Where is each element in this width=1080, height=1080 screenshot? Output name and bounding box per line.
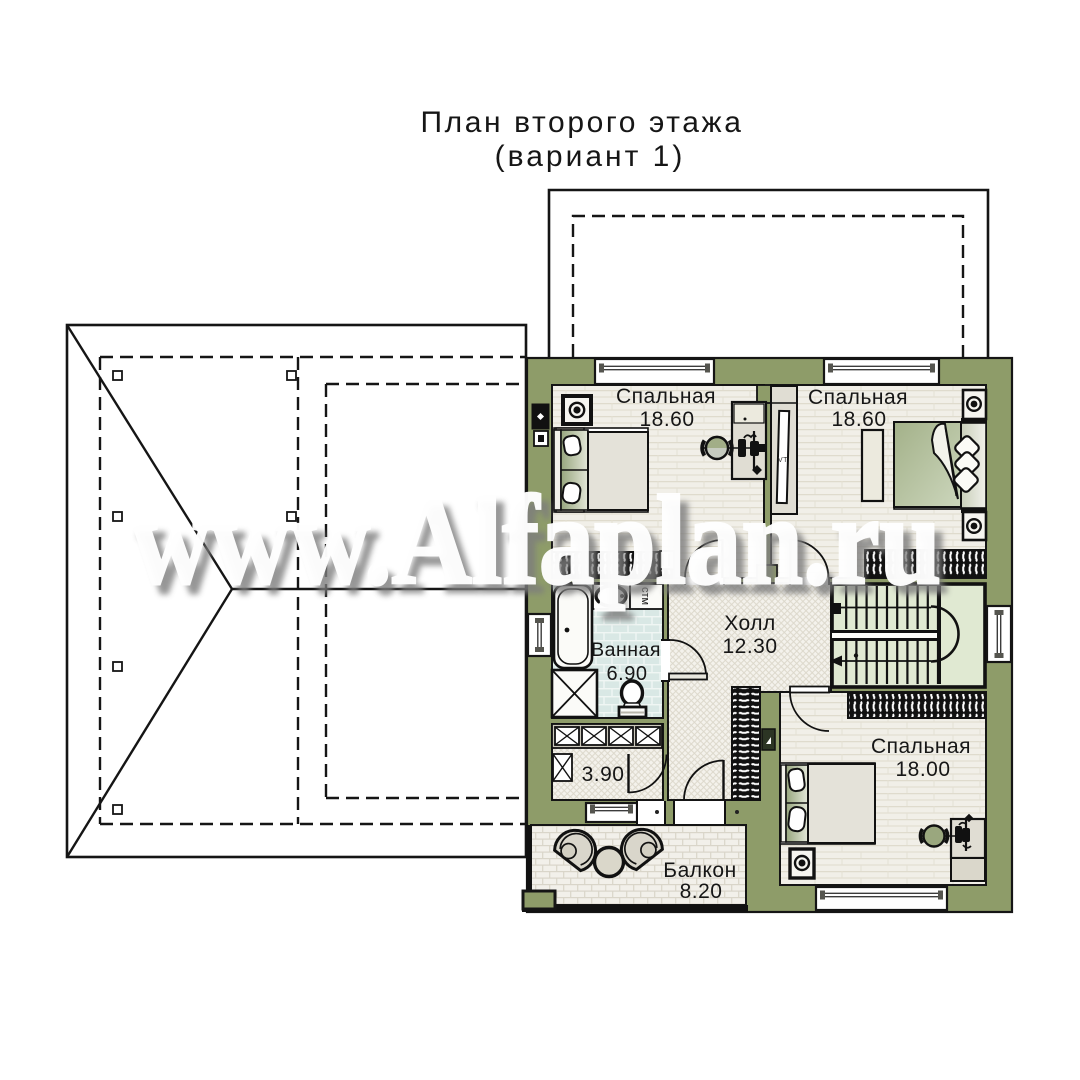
svg-text:Ванная: Ванная bbox=[591, 639, 661, 661]
svg-text:(вариант 1): (вариант 1) bbox=[495, 140, 686, 173]
svg-text:План второго этажа: План второго этажа bbox=[421, 106, 744, 139]
svg-text:Спальная: Спальная bbox=[871, 735, 971, 758]
svg-text:18.60: 18.60 bbox=[831, 408, 886, 431]
svg-text:18.00: 18.00 bbox=[895, 758, 950, 781]
svg-text:Балкон: Балкон bbox=[663, 859, 736, 882]
svg-text:Спальная: Спальная bbox=[808, 386, 908, 409]
svg-text:18.60: 18.60 bbox=[639, 408, 694, 431]
svg-text:3.90: 3.90 bbox=[582, 763, 625, 786]
svg-text:www.Alfaplan.ru: www.Alfaplan.ru bbox=[131, 471, 941, 611]
svg-text:12.30: 12.30 bbox=[722, 635, 777, 658]
svg-text:Спальная: Спальная bbox=[616, 385, 716, 408]
svg-text:6.90: 6.90 bbox=[607, 663, 648, 685]
svg-text:VT: VT bbox=[778, 457, 788, 464]
svg-text:8.20: 8.20 bbox=[680, 880, 723, 903]
